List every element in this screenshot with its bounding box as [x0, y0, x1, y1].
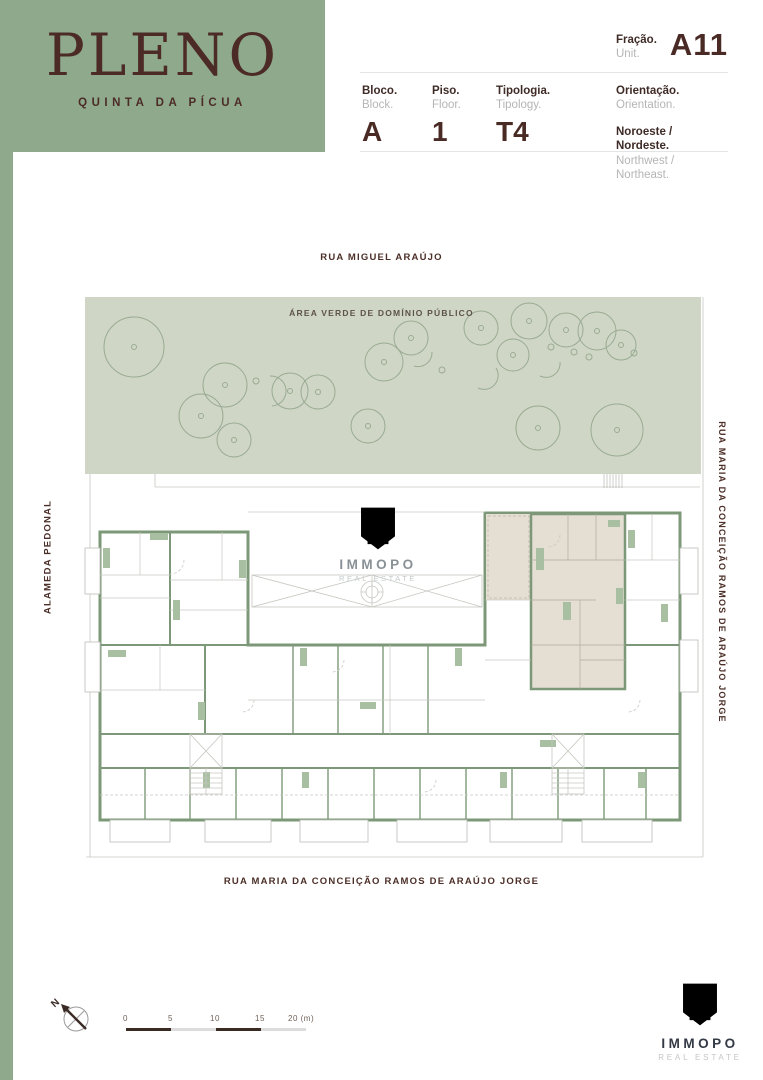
plan-sheet: PLENO QUINTA DA PÍCUA Fração. Unit. A11 …	[0, 0, 763, 1080]
divider	[360, 151, 728, 152]
divider	[360, 72, 728, 73]
typology-value: T4	[496, 125, 550, 139]
street-label-top: RUA MIGUEL ARAÚJO	[0, 252, 763, 263]
typology-label-pt: Tipologia.	[496, 85, 550, 97]
street-label-bottom: RUA MARIA DA CONCEIÇÃO RAMOS DE ARAÚJO J…	[0, 876, 763, 887]
scale-segment	[261, 1028, 306, 1031]
floor-label-pt: Piso.	[432, 85, 459, 97]
exterior-stairs-hatch	[604, 474, 622, 488]
fraction-value: A11	[670, 27, 728, 63]
scale-label-5: 5	[168, 1014, 213, 1017]
orientation-value-en: Northwest / Northeast.	[616, 154, 728, 182]
orientation-label-en: Orientation.	[616, 99, 675, 111]
courtyard-watermark: IMMOPO REAL ESTATE	[308, 503, 448, 583]
scale-bar: 0 5 10 15 20 (m)	[126, 1028, 306, 1031]
green-area-label: ÁREA VERDE DE DOMÍNIO PÚBLICO	[0, 308, 763, 318]
orientation-info: Orientação. Orientation. Noroeste / Nord…	[616, 84, 728, 182]
street-label-left: ALAMEDA PEDONAL	[43, 500, 54, 614]
fraction-label-en: Unit.	[616, 47, 657, 61]
floor-value: 1	[432, 125, 461, 139]
footer-logo-tagline: REAL ESTATE	[630, 1053, 763, 1062]
watermark-name: IMMOPO	[308, 557, 448, 572]
footer-logo: IMMOPO REAL ESTATE	[630, 981, 763, 1062]
block-info: Bloco. Block. A	[362, 84, 397, 139]
scale-label-0: 0	[123, 1014, 168, 1017]
floor-label-en: Floor.	[432, 99, 461, 111]
brand-block: PLENO QUINTA DA PÍCUA	[0, 0, 325, 152]
green-area	[85, 297, 701, 474]
footer-logo-name: IMMOPO	[630, 1036, 763, 1051]
scale-segment	[126, 1028, 171, 1031]
scale-segment	[171, 1028, 216, 1031]
brand-title: PLENO	[0, 26, 325, 84]
typology-label-en: Tipology.	[496, 99, 541, 111]
watermark-tagline: REAL ESTATE	[308, 574, 448, 583]
scale-label-20: 20 (m)	[288, 1014, 333, 1017]
orientation-label-pt: Orientação.	[616, 85, 679, 97]
street-label-right: RUA MARIA DA CONCEIÇÃO RAMOS DE ARAÚJO J…	[717, 421, 727, 722]
block-label-en: Block.	[362, 99, 393, 111]
scale-segment	[216, 1028, 261, 1031]
fraction-labels: Fração. Unit.	[616, 33, 657, 61]
orientation-value-pt: Noroeste / Nordeste.	[616, 125, 728, 153]
unit-info-panel: Fração. Unit. A11 Bloco. Block. A Piso. …	[360, 0, 728, 160]
brand-subtitle: QUINTA DA PÍCUA	[0, 97, 325, 109]
north-compass-icon	[61, 1004, 88, 1031]
block-value: A	[362, 125, 397, 139]
floor-info: Piso. Floor. 1	[432, 84, 461, 139]
scale-label-10: 10	[210, 1014, 255, 1017]
typology-info: Tipologia. Tipology. T4	[496, 84, 550, 139]
left-edge-strip	[0, 0, 13, 1080]
fraction-label-pt: Fração.	[616, 33, 657, 47]
block-label-pt: Bloco.	[362, 85, 397, 97]
